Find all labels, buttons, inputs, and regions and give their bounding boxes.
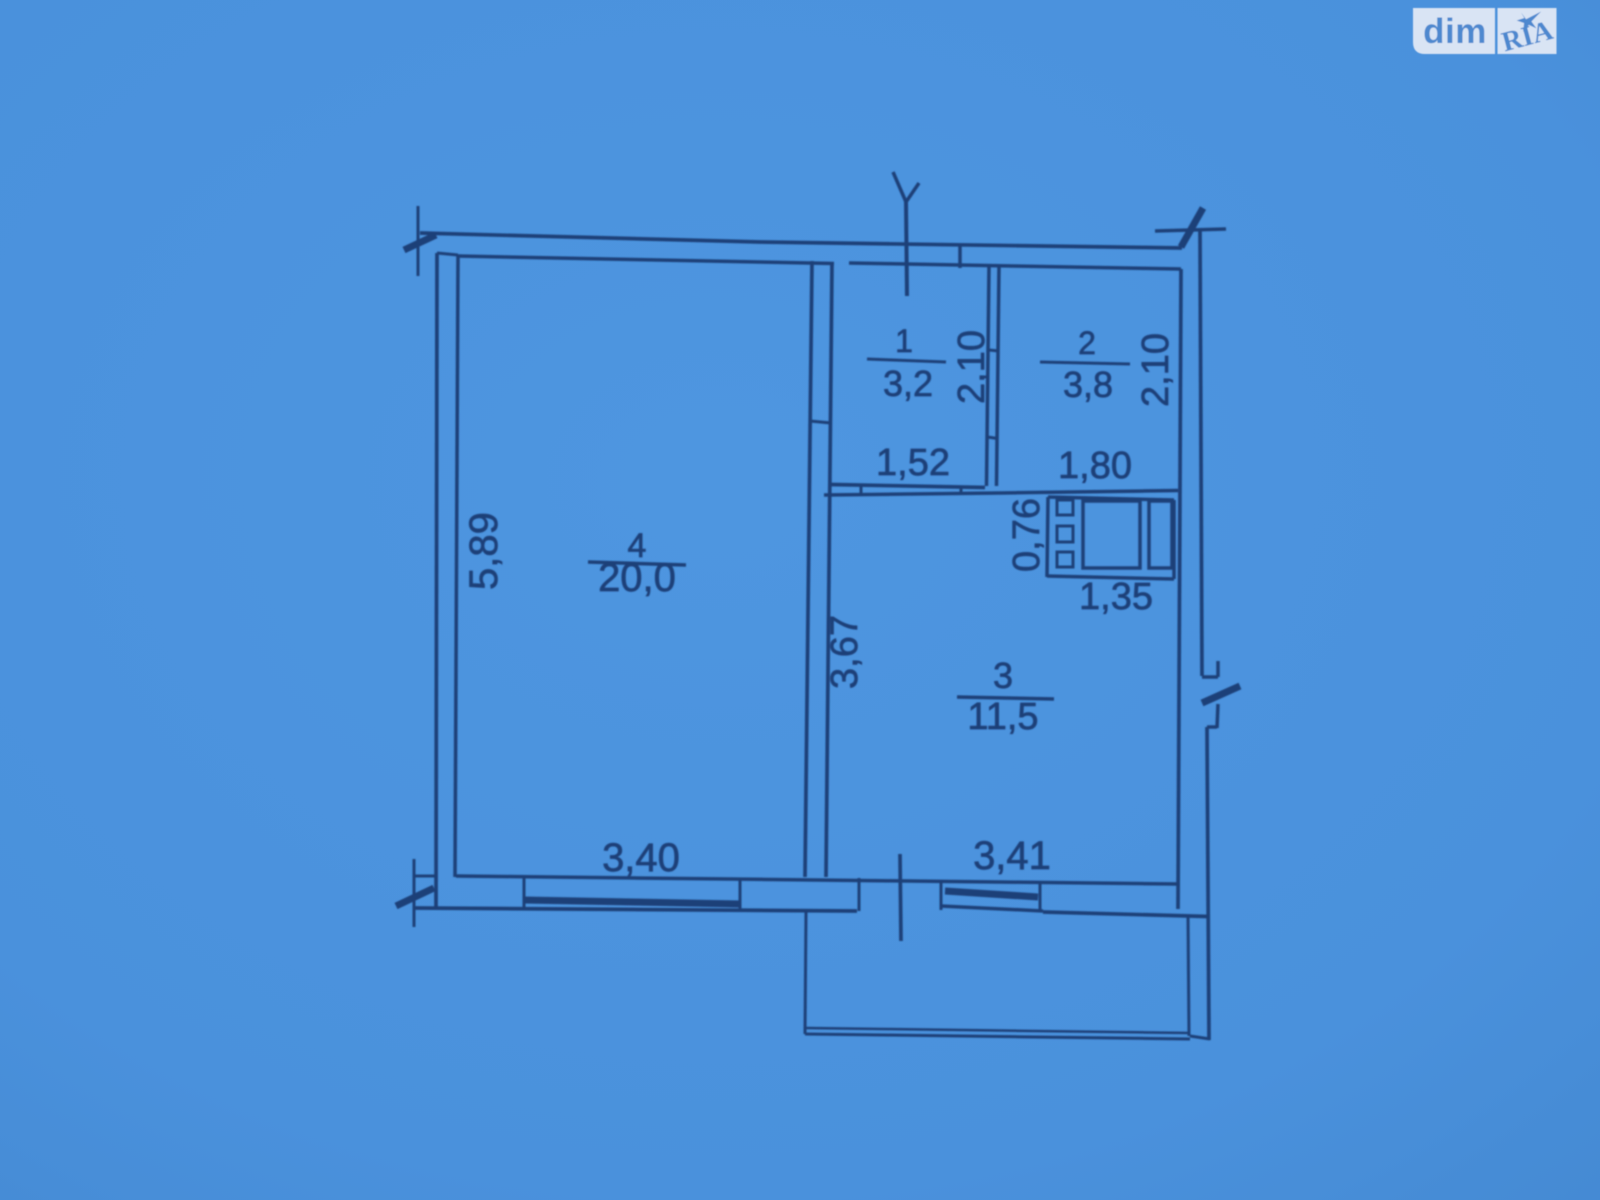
svg-text:2,10: 2,10: [951, 330, 993, 404]
svg-text:3: 3: [993, 655, 1013, 696]
svg-text:3,67: 3,67: [824, 615, 866, 689]
svg-text:20,0: 20,0: [598, 556, 676, 600]
svg-text:2,10: 2,10: [1135, 333, 1177, 407]
svg-text:1,35: 1,35: [1079, 576, 1153, 618]
svg-text:3,2: 3,2: [883, 363, 933, 404]
svg-text:3,40: 3,40: [602, 836, 680, 880]
svg-text:1: 1: [895, 323, 913, 359]
svg-text:5,89: 5,89: [462, 512, 506, 590]
svg-text:3,8: 3,8: [1063, 364, 1113, 405]
svg-text:0,76: 0,76: [1006, 498, 1048, 572]
svg-text:1,52: 1,52: [876, 442, 950, 484]
svg-text:1,80: 1,80: [1058, 445, 1132, 487]
svg-text:dim: dim: [1423, 12, 1487, 51]
svg-text:3,41: 3,41: [973, 834, 1051, 878]
svg-text:2: 2: [1078, 325, 1096, 361]
svg-text:11,5: 11,5: [967, 696, 1038, 738]
